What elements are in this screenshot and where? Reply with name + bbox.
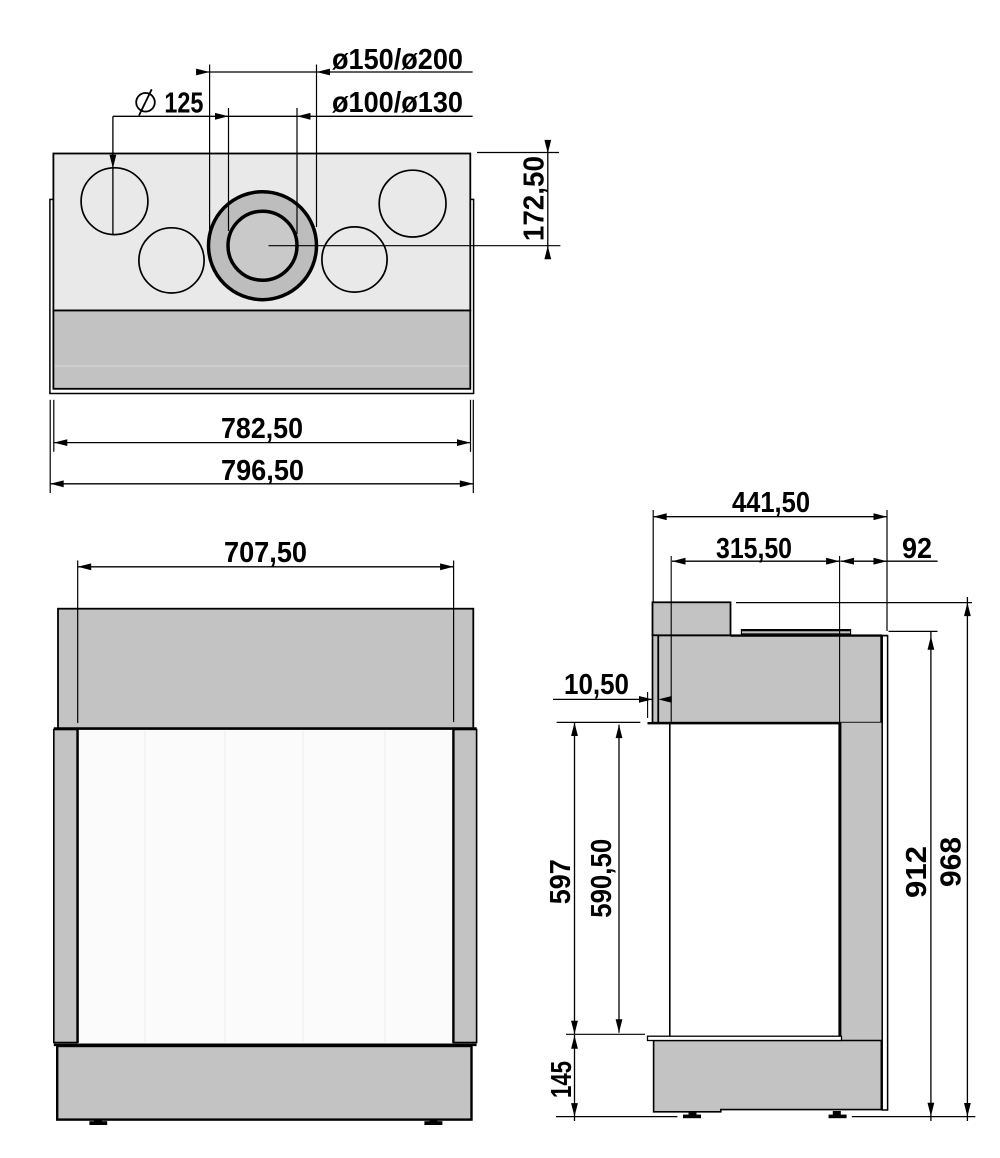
svg-text:125: 125	[164, 88, 203, 120]
svg-text:707,50: 707,50	[224, 537, 307, 569]
svg-text:ø150/ø200: ø150/ø200	[332, 44, 463, 76]
svg-text:968: 968	[936, 837, 968, 887]
svg-text:441,50: 441,50	[732, 487, 810, 519]
svg-text:597: 597	[545, 859, 577, 904]
svg-text:172,50: 172,50	[519, 156, 551, 241]
svg-text:590,50: 590,50	[586, 839, 618, 918]
svg-text:782,50: 782,50	[221, 413, 303, 445]
svg-text:92: 92	[902, 533, 932, 565]
svg-text:ø100/ø130: ø100/ø130	[332, 87, 463, 119]
svg-text:145: 145	[546, 1061, 578, 1098]
svg-text:912: 912	[901, 846, 933, 898]
svg-text:315,50: 315,50	[716, 533, 792, 565]
svg-text:10,50: 10,50	[564, 669, 629, 701]
svg-text:796,50: 796,50	[221, 455, 304, 487]
